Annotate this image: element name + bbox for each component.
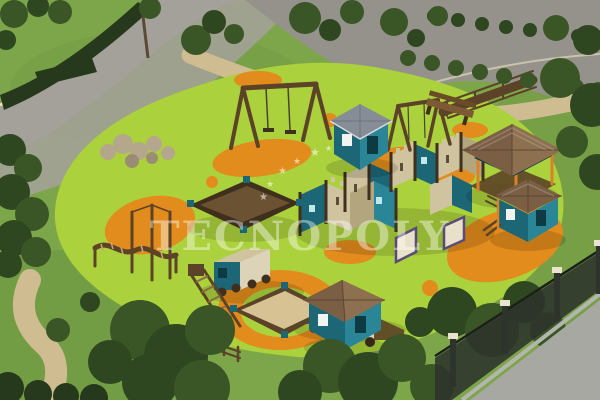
watermark-star: ★ (310, 146, 320, 159)
watermark-star: ★ (278, 166, 287, 177)
scene: ★ ★ ★ ★ ★ ★ TECNOPOLY (0, 0, 600, 400)
watermark-star: ★ (259, 192, 268, 203)
watermark-text: TECNOPOLY (150, 213, 451, 260)
watermark-star: ★ (325, 144, 332, 153)
watermark-star: ★ (266, 180, 274, 190)
watermark-star: ★ (293, 157, 301, 167)
playground-aerial-render: ★ ★ ★ ★ ★ ★ TECNOPOLY (0, 0, 600, 400)
